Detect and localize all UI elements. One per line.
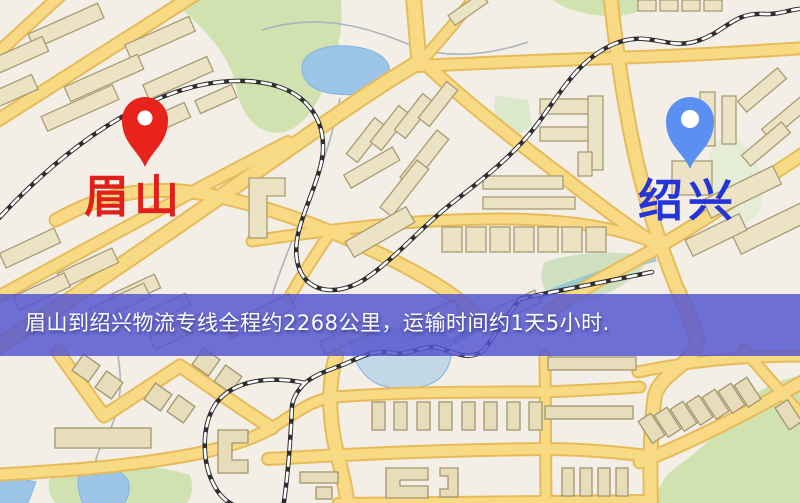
- route-info-text: 眉山到绍兴物流专线全程约2268公里，运输时间约1天5小时.: [25, 307, 610, 337]
- map-image: [0, 0, 800, 503]
- route-info-banner: 眉山到绍兴物流专线全程约2268公里，运输时间约1天5小时.: [0, 294, 800, 356]
- map-canvas: 眉山 绍兴 眉山到绍兴物流专线全程约2268公里，运输时间约1天5小时.: [0, 0, 800, 503]
- destination-label: 绍兴: [638, 178, 738, 223]
- origin-label: 眉山: [84, 174, 184, 219]
